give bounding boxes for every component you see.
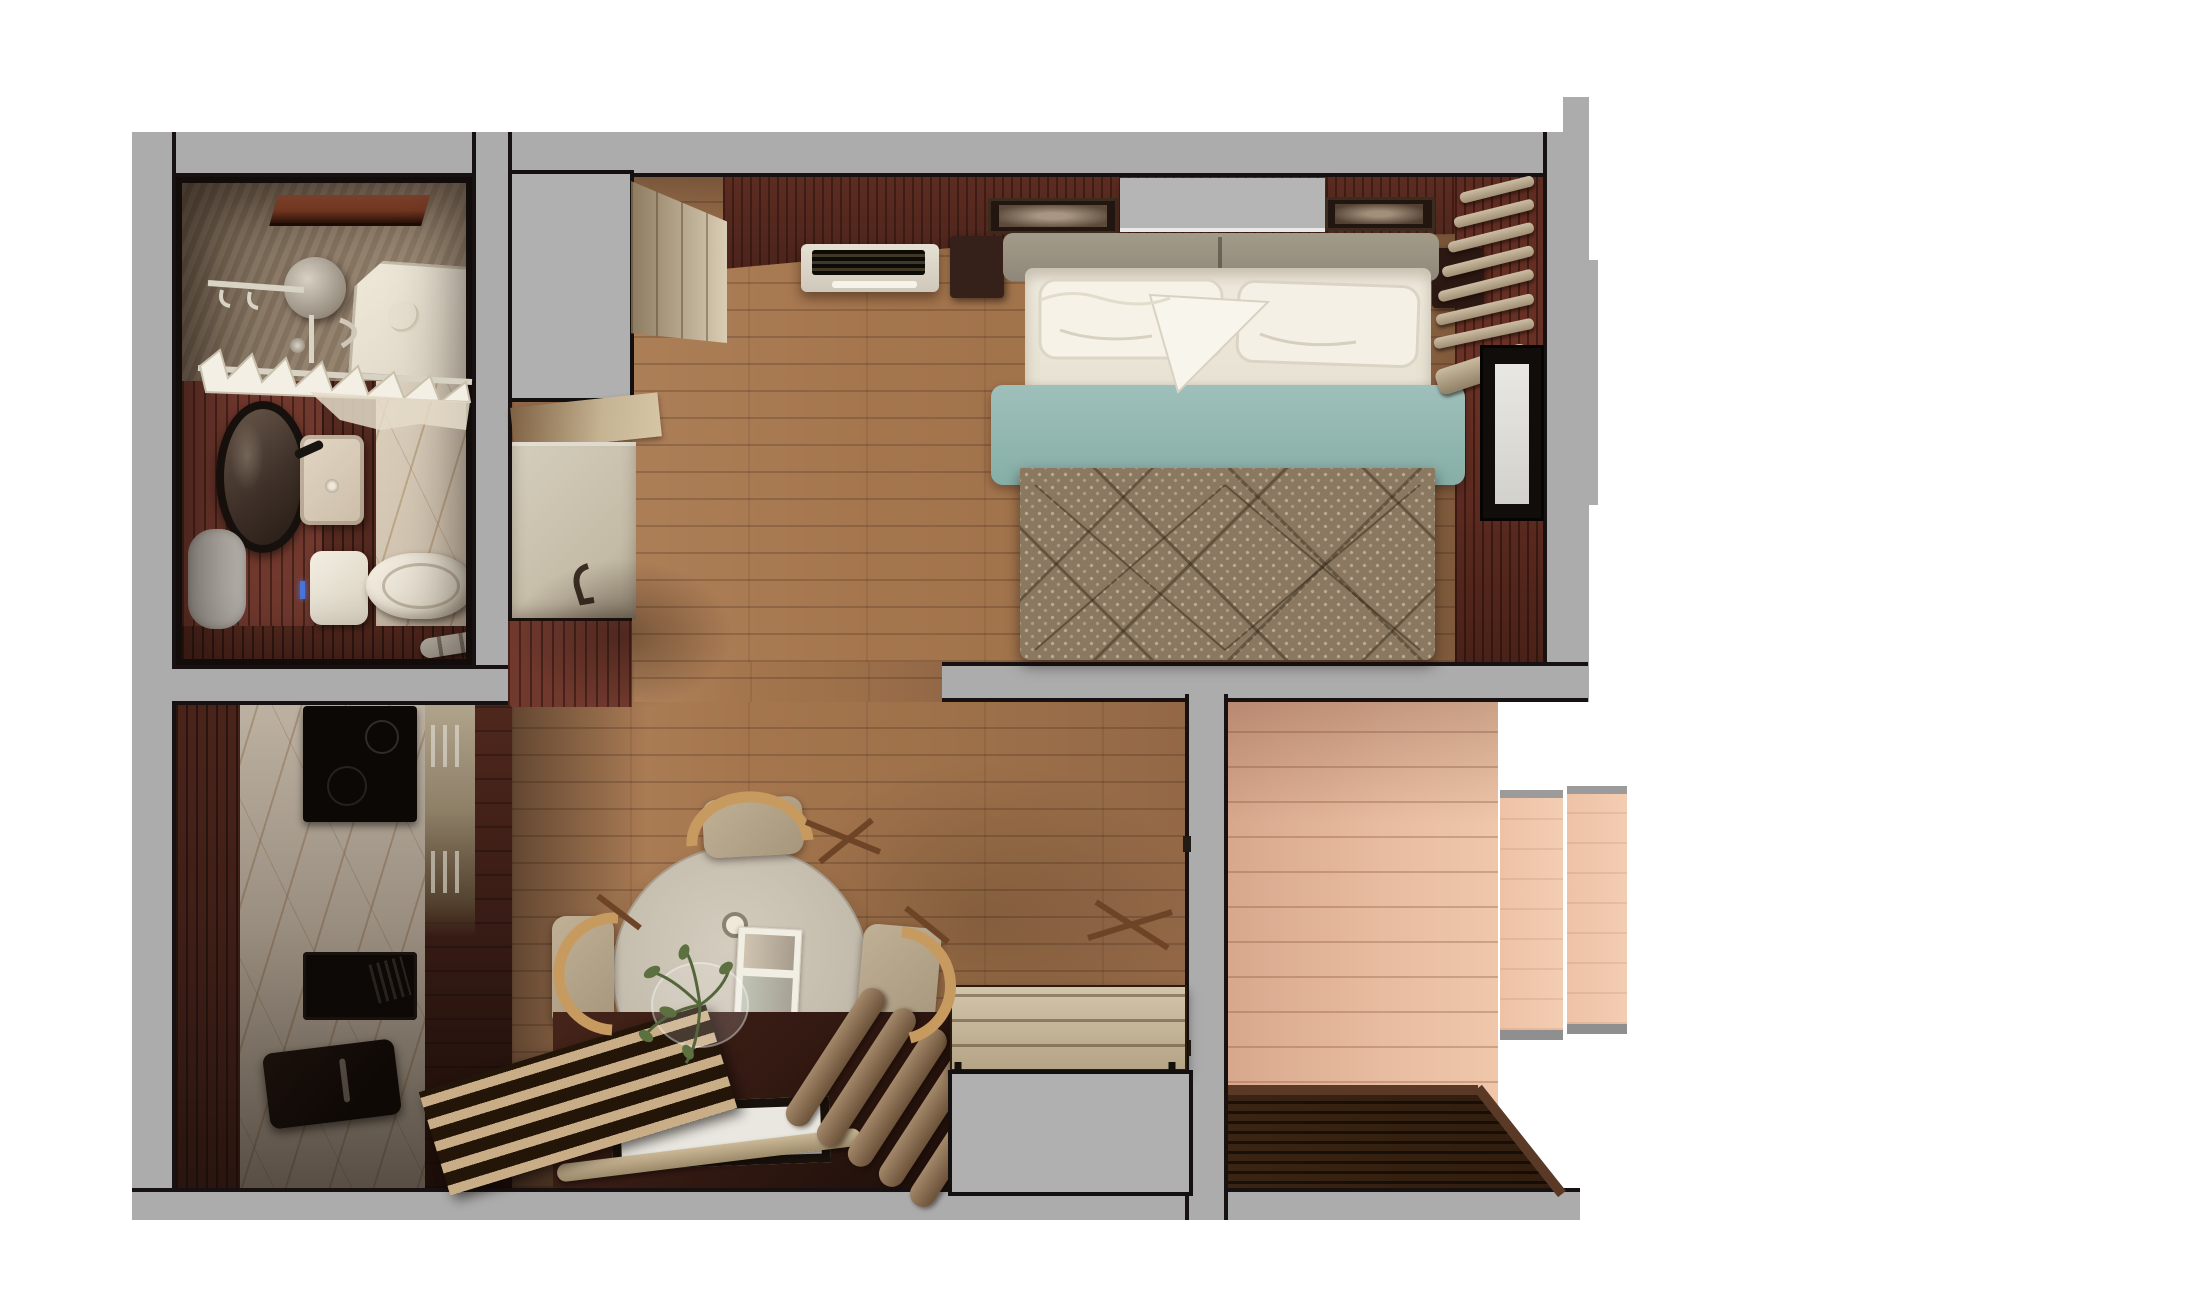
table-plant — [637, 943, 748, 1063]
floor-plan-render — [0, 0, 2200, 1290]
decor-overlay — [0, 0, 2200, 1290]
bedspread-quilting — [1035, 485, 1420, 650]
bed-pillows — [1040, 280, 1419, 392]
deck-frame — [1228, 1088, 1562, 1194]
chair-wood-arcs — [559, 797, 951, 1038]
shower-arm-icon — [208, 283, 355, 346]
corridor-shadow — [512, 560, 732, 710]
towel-rail-with-towels — [198, 350, 472, 430]
bench-feet — [958, 1062, 1172, 1072]
chair-stick-details — [598, 820, 1172, 948]
